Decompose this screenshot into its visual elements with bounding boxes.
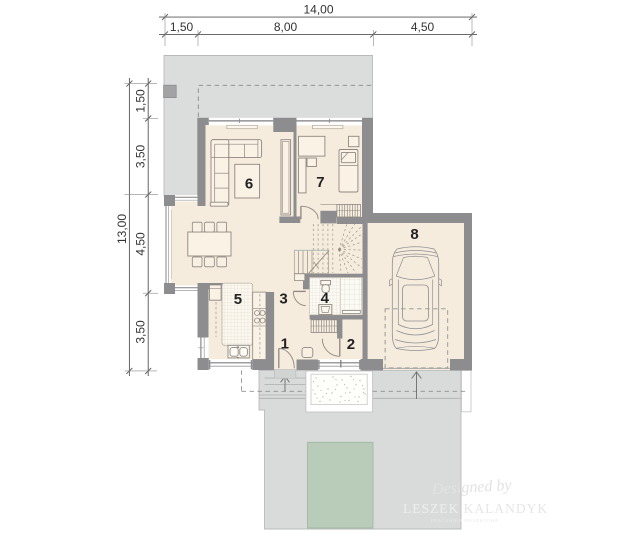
svg-text:3,50: 3,50 bbox=[134, 320, 148, 344]
svg-text:4,50: 4,50 bbox=[411, 20, 435, 34]
svg-text:13,00: 13,00 bbox=[115, 214, 129, 244]
svg-text:4: 4 bbox=[321, 290, 330, 307]
svg-text:PRACOWNIA PROJEKTOWA: PRACOWNIA PROJEKTOWA bbox=[431, 518, 499, 523]
svg-text:3: 3 bbox=[279, 290, 287, 307]
svg-text:5: 5 bbox=[234, 291, 242, 308]
svg-text:8,00: 8,00 bbox=[274, 20, 298, 34]
svg-text:1: 1 bbox=[281, 335, 289, 352]
svg-text:8: 8 bbox=[410, 226, 418, 243]
svg-text:7: 7 bbox=[316, 174, 324, 191]
svg-text:3,50: 3,50 bbox=[134, 144, 148, 168]
svg-text:4,50: 4,50 bbox=[134, 232, 148, 256]
svg-text:1,50: 1,50 bbox=[170, 20, 194, 34]
svg-text:1,50: 1,50 bbox=[134, 89, 148, 113]
svg-text:2: 2 bbox=[347, 336, 355, 353]
svg-text:6: 6 bbox=[245, 175, 253, 192]
svg-text:14,00: 14,00 bbox=[303, 3, 333, 17]
